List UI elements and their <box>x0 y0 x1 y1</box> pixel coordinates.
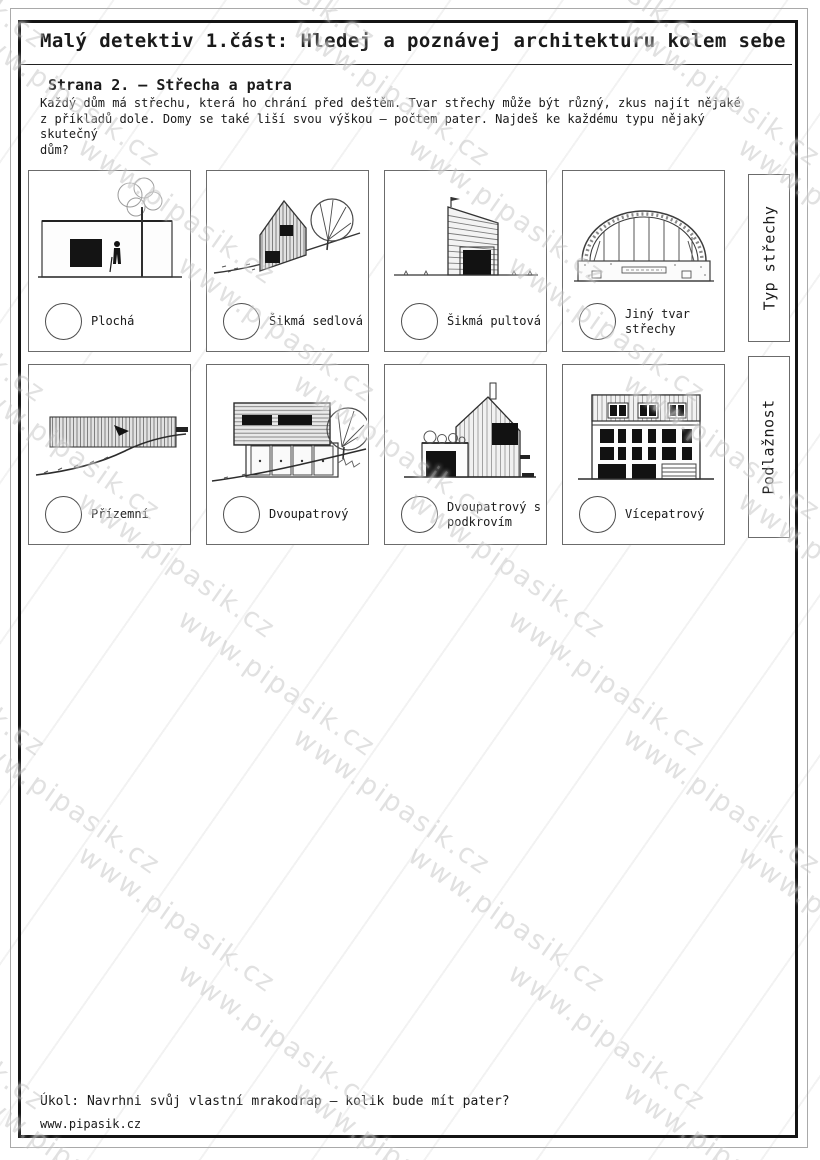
side-label-roof-type: Typ střechy <box>748 174 790 342</box>
section-heading: Strana 2. – Střecha a patra <box>48 76 292 94</box>
worksheet-page: Malý detektiv 1.část: Hledej a poznávej … <box>0 0 820 1160</box>
card-dvoupatrovy-s-podkrovim: Dvoupatrový s podkrovím <box>384 364 547 545</box>
radio-prizemni[interactable] <box>45 496 82 533</box>
radio-sikma-pultova[interactable] <box>401 303 438 340</box>
flat-roof-house-illustration <box>30 173 189 295</box>
radio-dvoupatrovy-s-podkrovim[interactable] <box>401 496 438 533</box>
side-label-floors: Podlažnost <box>748 356 790 538</box>
option-label: Dvoupatrový <box>269 507 348 522</box>
card-dvoupatrovy: Dvoupatrový <box>206 364 369 545</box>
option-dvoupatrovy: Dvoupatrový <box>223 496 348 533</box>
card-jiny-tvar: Jiný tvar střechy <box>562 170 725 352</box>
option-dvoupatrovy-s-podkrovim: Dvoupatrový s podkrovím <box>401 496 543 533</box>
card-plocha: Plochá <box>28 170 191 352</box>
single-story-house-illustration <box>30 367 189 489</box>
option-sikma-sedlova: Šikmá sedlová <box>223 303 363 340</box>
option-label: Plochá <box>91 314 134 329</box>
radio-vicepatrovy[interactable] <box>579 496 616 533</box>
radio-jiny-tvar[interactable] <box>579 303 616 340</box>
gable-roof-house-illustration <box>208 173 367 295</box>
intro-text: Každý dům má střechu, která ho chrání př… <box>40 96 760 158</box>
footer-task: Úkol: Navrhni svůj vlastní mrakodrap – k… <box>40 1094 510 1109</box>
card-sikma-pultova: Šikmá pultová <box>384 170 547 352</box>
option-label: Šikmá pultová <box>447 314 541 329</box>
option-label: Dvoupatrový s podkrovím <box>447 500 543 530</box>
side-label-text: Podlažnost <box>760 399 778 494</box>
two-story-attic-house-illustration <box>386 367 545 489</box>
two-story-house-illustration <box>208 367 367 489</box>
title-divider <box>21 64 792 65</box>
arched-roof-building-illustration <box>564 173 723 295</box>
footer-site: www.pipasik.cz <box>40 1117 141 1131</box>
option-vicepatrovy: Vícepatrový <box>579 496 704 533</box>
option-prizemni: Přízemní <box>45 496 149 533</box>
option-label: Přízemní <box>91 507 149 522</box>
card-prizemni: Přízemní <box>28 364 191 545</box>
option-label: Jiný tvar střechy <box>625 307 721 337</box>
side-label-text: Typ střechy <box>760 206 778 311</box>
radio-dvoupatrovy[interactable] <box>223 496 260 533</box>
option-sikma-pultova: Šikmá pultová <box>401 303 541 340</box>
radio-plocha[interactable] <box>45 303 82 340</box>
option-label: Vícepatrový <box>625 507 704 522</box>
multi-story-building-illustration <box>564 367 723 489</box>
option-jiny-tvar: Jiný tvar střechy <box>579 303 721 340</box>
card-vicepatrovy: Vícepatrový <box>562 364 725 545</box>
option-label: Šikmá sedlová <box>269 314 363 329</box>
option-plocha: Plochá <box>45 303 134 340</box>
card-sikma-sedlova: Šikmá sedlová <box>206 170 369 352</box>
page-title: Malý detektiv 1.část: Hledej a poznávej … <box>40 30 786 52</box>
radio-sikma-sedlova[interactable] <box>223 303 260 340</box>
shed-roof-house-illustration <box>386 173 545 295</box>
